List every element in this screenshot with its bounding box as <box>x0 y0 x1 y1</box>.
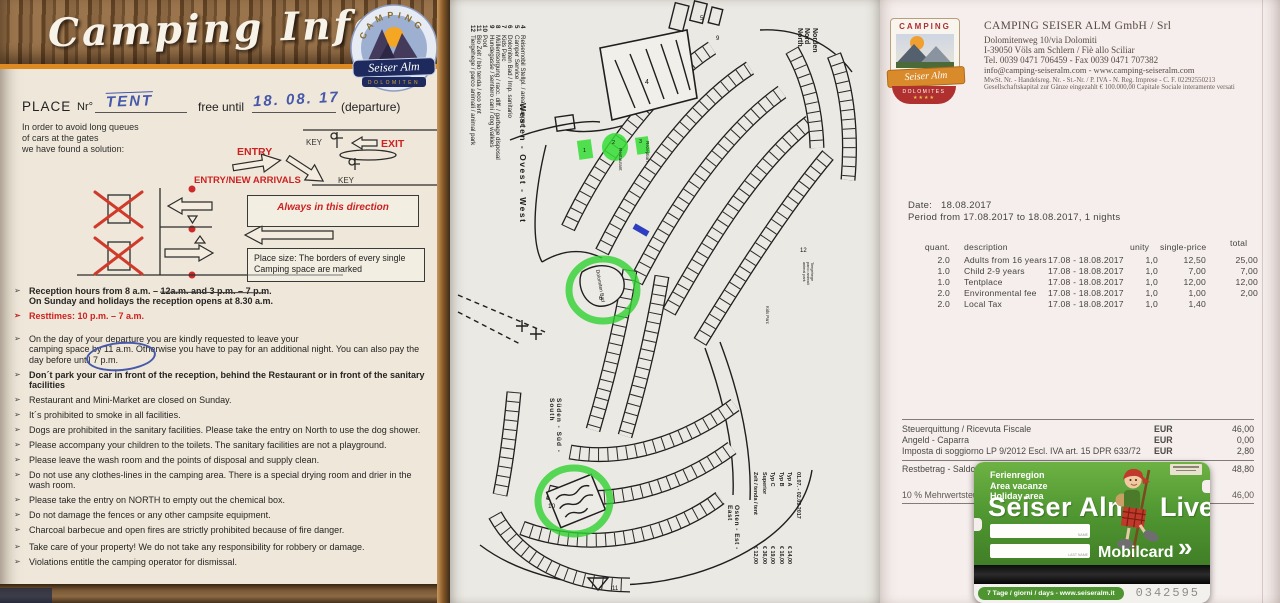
restaurant-label: Restaurant <box>618 148 623 171</box>
legend-item: 6Dolomiten Bad / Imp. sanitario <box>506 25 512 445</box>
exit-label: EXIT <box>381 138 405 150</box>
photo-collage: Camping Info CAMPING Seiser Alm DOLOMITE… <box>0 0 1280 603</box>
page-crease <box>1262 0 1263 603</box>
legend-item: 9Hundegasse / sentiero cani / dog walkie… <box>487 25 493 445</box>
svg-text:4: 4 <box>645 79 649 86</box>
free-until-label: free until <box>198 100 244 114</box>
place-label: PLACE <box>22 99 71 114</box>
svg-text:10: 10 <box>548 503 556 510</box>
arrow-bullet-icon: ➢ <box>14 470 29 491</box>
no-parking-x-icon <box>95 192 142 227</box>
rule-item: ➢ Please accompany your children to the … <box>14 440 431 450</box>
mobilcard: Ferienregion Area vacanze Holiday area S… <box>974 462 1210 603</box>
charges-table: quant. description unity single-price to… <box>908 242 1258 310</box>
place-nr-label: Nr° <box>77 101 93 113</box>
date-underline <box>252 112 336 113</box>
punch-notch <box>1202 480 1210 493</box>
summary-row: Angeld - Caparra EUR 0,00 <box>902 435 1254 446</box>
compass-west-label: Westen - Ovest - West <box>518 103 528 263</box>
pen-mark <box>633 223 650 236</box>
departure-label: (departure) <box>341 100 400 114</box>
rule-item: ➢ Dogs are prohibited in the sanitary fa… <box>14 425 431 435</box>
serial-number: 0342595 <box>1136 586 1200 600</box>
table-row: 2.0 Environmental fee 17.08 - 18.08.2017… <box>908 288 1258 299</box>
arrow-bullet-icon: ➢ <box>14 286 29 307</box>
compass-north-label: Norden Nord North <box>795 28 818 64</box>
rule-item: ➢ Violations entitle the camping operato… <box>14 557 431 567</box>
page-title: Camping Info <box>47 2 382 57</box>
key-label-top: KEY <box>306 138 323 147</box>
arrow-bullet-icon: ➢ <box>14 510 29 520</box>
pen-strikethrough <box>160 291 266 293</box>
rule-item: ➢ Take care of your property! We do not … <box>14 542 431 552</box>
mobilcard-face: Ferienregion Area vacanze Holiday area S… <box>974 462 1210 565</box>
rule-item: ➢ Please leave the wash room and the poi… <box>14 455 431 465</box>
table-edge <box>0 588 52 603</box>
camping-badge-icon: CAMPING Seiser Alm DOLOMITES ★★★★ <box>890 18 960 106</box>
summary-row: Steuerquittung / Ricevuta Fiscale EUR 46… <box>902 424 1254 435</box>
arrow-bullet-icon: ➢ <box>14 440 29 450</box>
price-item: Typ B€ 16,00 <box>776 472 785 564</box>
punch-notch <box>974 518 982 531</box>
reception-label: Rezeption <box>645 141 650 162</box>
seiseralm-badge-icon: CAMPING Seiser Alm DOLOMITEN CAMPING <box>348 3 440 95</box>
arrow-bullet-icon: ➢ <box>14 525 29 535</box>
svg-text:12: 12 <box>800 248 807 254</box>
no-parking-x-icon <box>95 238 142 274</box>
validity-pill: 7 Tage / giorni / days - www.seiseralm.i… <box>978 587 1124 600</box>
arrow-bullet-icon: ➢ <box>14 334 29 365</box>
rule-item: ➢ Resttimes: 10 p.m. – 7 a.m. <box>14 311 431 321</box>
chevrons-icon: » <box>1178 532 1192 563</box>
arrow-bullet-icon: ➢ <box>14 455 29 465</box>
price-item: Superior€ 36,00 <box>759 472 768 564</box>
svg-text:3: 3 <box>639 139 642 145</box>
svg-text:11: 11 <box>612 586 619 592</box>
rule-item: ➢ Please take the entry on NORTH to empt… <box>14 495 431 505</box>
arrow-bullet-icon: ➢ <box>14 495 29 505</box>
date-row: Date: 18.08.2017 Period from 17.08.2017 … <box>908 200 1120 223</box>
card-footer: 7 Tage / giorni / days - www.seiseralm.i… <box>974 584 1210 603</box>
svg-text:9: 9 <box>716 36 720 42</box>
place-underline <box>95 112 187 113</box>
rule-item: ➢ Don´t park your car in front of the re… <box>14 370 431 391</box>
corner-sticker <box>1170 464 1202 475</box>
sheet-edge <box>437 0 450 603</box>
rules-list: ➢ Reception hours from 8 a.m. – 12a.m. a… <box>14 286 431 572</box>
wood-strip <box>0 584 450 603</box>
svg-text:2: 2 <box>612 140 615 146</box>
arrow-bullet-icon: ➢ <box>14 557 29 567</box>
svg-text:DOLOMITEN: DOLOMITEN <box>368 80 420 86</box>
arrow-bullet-icon: ➢ <box>14 542 29 552</box>
arrow-bullet-icon: ➢ <box>14 395 29 405</box>
season-dates: 01.07. - 02.09.2017 <box>793 472 802 564</box>
rule-item: ➢ Do not use any clothes-lines in the ca… <box>14 470 431 491</box>
arrow-bullet-icon: ➢ <box>14 410 29 420</box>
kids-parc-label: Kids Parc <box>765 306 770 328</box>
date-value: 18.08.2017 <box>941 200 992 211</box>
table-row: 2.0 Adults from 16 years 17.08 - 18.08.2… <box>908 255 1258 266</box>
svg-text:1: 1 <box>583 148 586 154</box>
rule-item: ➢ Reception hours from 8 a.m. – 12a.m. a… <box>14 286 431 307</box>
company-header: CAMPING SEISER ALM GmbH / Srl Dolomitenw… <box>984 20 1274 91</box>
direction-note-box: Always in this direction <box>247 195 419 227</box>
rule-item: ➢ Restaurant and Mini-Market are closed … <box>14 395 431 405</box>
svg-text:Seiser Alm: Seiser Alm <box>368 59 420 75</box>
mobilcard-brand: Mobilcard <box>1098 544 1174 562</box>
place-number-handwritten: TENT <box>106 92 154 111</box>
arrow-bullet-icon: ➢ <box>14 370 29 391</box>
table-header: quant. description unity single-price to… <box>908 242 1258 255</box>
arrow-bullet-icon: ➢ <box>14 311 29 321</box>
legend-item: 12Tiergehege / parco animali / animal pa… <box>468 25 474 445</box>
camping-info-sheet: Camping Info CAMPING Seiser Alm DOLOMITE… <box>0 0 450 603</box>
table-row: 1.0 Child 2-9 years 17.08 - 18.08.2017 1… <box>908 266 1258 277</box>
compass-east-label: Osten - Est - East <box>726 505 740 567</box>
rule-item: ➢ Do not damage the fences or any other … <box>14 510 431 520</box>
compass-south-label: Süden - Süd - South <box>548 398 562 473</box>
arrow-bullet-icon: ➢ <box>14 425 29 435</box>
entry-new-arrivals-label: ENTRY/NEW ARRIVALS <box>194 175 301 186</box>
price-item: Zelt / tenda / tent€ 12,00 <box>750 472 759 564</box>
place-size-note-box: Place size: The borders of every single … <box>247 248 425 282</box>
price-item: Typ C€ 19,00 <box>768 472 777 564</box>
price-list: 01.07. - 02.09.2017 Typ A€ 14,00 Typ B€ … <box>750 472 802 564</box>
price-item: Typ A€ 14,00 <box>785 472 794 564</box>
departure-date-handwritten: 18. 08. 17 <box>253 89 341 111</box>
rule-item: ➢ On the day of your departure you are k… <box>14 334 431 365</box>
map-legend: 4Reisemobil Stellpl. / area camper 5Camp… <box>468 25 525 445</box>
receipt: CAMPING Seiser Alm DOLOMITES ★★★★ CAMPIN… <box>880 0 1280 603</box>
period-line: Period from 17.08.2017 to 18.08.2017, 1 … <box>908 212 1120 223</box>
lastname-field: LAST NAME <box>990 544 1090 558</box>
campsite-map: 1 2 3 Restaurant Rezeption 6 Dolomiten B… <box>450 0 880 603</box>
name-field: NAME <box>990 524 1090 538</box>
key-label-bottom: KEY <box>338 176 355 185</box>
company-name: CAMPING SEISER ALM GmbH / Srl <box>984 20 1274 32</box>
animal-park-label: Tiergehege parco animali animal park <box>801 262 814 298</box>
table-row: 2.0 Local Tax 17.08 - 18.08.2017 1,0 1,4… <box>908 299 1258 310</box>
summary-row: Imposta di soggiorno LP 9/2012 Escl. IVA… <box>902 446 1254 457</box>
date-label: Date: <box>908 200 932 211</box>
rule-item: ➢ It´s prohibited to smoke in all facili… <box>14 410 431 420</box>
table-row: 1.0 Tentplace 17.08 - 18.08.2017 1,0 12,… <box>908 277 1258 288</box>
magnetic-stripe <box>974 565 1210 584</box>
rule-item: ➢ Charcoal barbecue and open fires are s… <box>14 525 431 535</box>
